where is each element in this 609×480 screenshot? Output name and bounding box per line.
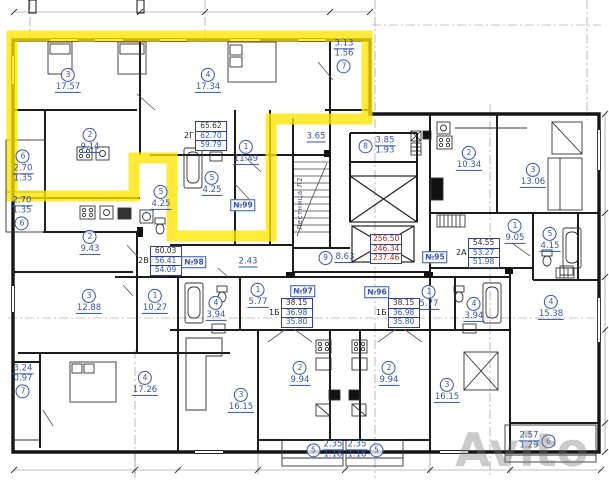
area-living: 35.80 <box>282 318 312 327</box>
room-number: 3 <box>82 289 96 303</box>
room-area: 5.77 <box>419 300 440 310</box>
room-number: 1 <box>508 219 522 233</box>
room-area: 9.94 <box>379 376 400 386</box>
room-area-secondary: 1.35 <box>12 207 33 216</box>
room-area: 17.57 <box>55 83 81 93</box>
unit-tag-95: №95 <box>422 251 447 263</box>
room-number: 2 <box>462 146 476 160</box>
room-label: 15.77 <box>419 284 440 310</box>
apartment-id: 2В <box>138 256 149 265</box>
room-area: 9.14 <box>80 143 101 153</box>
room-area: 8.63 <box>335 253 356 263</box>
room-number: 6 <box>16 149 30 163</box>
room-number: 4 <box>209 296 223 310</box>
room-area: 3.94 <box>464 312 485 322</box>
watermark: Avito <box>455 423 588 477</box>
room-number: 4 <box>544 295 558 309</box>
room-number: 3 <box>440 378 454 392</box>
floor-plan: 317.57417.343.131.56729.14111.4954.2554.… <box>0 0 609 480</box>
room-number: 5 <box>154 185 168 199</box>
outer-walls <box>13 40 599 452</box>
unit-tag-97: №97 <box>290 285 315 297</box>
room-area-secondary: 1.18 <box>323 451 344 460</box>
room-area: 4.15 <box>540 242 561 252</box>
room-label: 317.57 <box>55 67 81 93</box>
room-label: 316.15 <box>228 387 254 413</box>
room-area: 11.49 <box>233 155 259 165</box>
room-label: 83.851.93 <box>359 136 396 155</box>
room-label: 29.43 <box>80 229 101 255</box>
room-label: 111.49 <box>233 139 259 165</box>
apartment-areas: 38.15 36.98 35.80 <box>281 298 313 328</box>
room-label: 3.240.977 <box>13 364 34 399</box>
room-area: 10.27 <box>142 304 168 314</box>
room-area: 13.06 <box>520 178 546 188</box>
room-label: 2.701.356 <box>12 196 33 231</box>
room-number: 1 <box>148 289 162 303</box>
room-label: 54.15 <box>540 226 561 252</box>
room-label: 62.701.35 <box>13 148 34 183</box>
room-area: 9.94 <box>290 376 311 386</box>
room-number: 7 <box>16 385 30 399</box>
room-area: 17.26 <box>132 386 158 396</box>
apartment-table-1b-left: 1Б 38.15 36.98 35.80 <box>269 298 313 328</box>
room-number: 9 <box>319 251 333 265</box>
room-label: 54.25 <box>202 170 223 196</box>
room-label: 110.27 <box>142 288 168 314</box>
room-label: 29.94 <box>379 360 400 386</box>
room-label: 29.14 <box>80 127 101 153</box>
apartment-table-1b-right: 1Б 38.15 36.98 35.80 <box>376 298 420 328</box>
room-area-secondary: 1.18 <box>347 451 368 460</box>
room-label: 54.25 <box>151 184 172 210</box>
unit-tag-96: №96 <box>364 286 389 298</box>
room-number: 1 <box>251 283 265 297</box>
area-living: 59.79 <box>196 141 226 150</box>
room-number: 2 <box>83 128 97 142</box>
total-row: 237.46 <box>371 254 401 263</box>
apartment-areas: 54.55 53.27 51.98 <box>468 238 500 268</box>
apartment-areas: 65.62 62.70 59.79 <box>195 121 227 151</box>
room-area: 4.25 <box>202 186 223 196</box>
room-area: 16.15 <box>228 403 254 413</box>
room-label: 316.15 <box>434 377 460 403</box>
room-label: 2.351.185 <box>347 440 384 459</box>
area-living: 51.98 <box>469 258 499 267</box>
room-area: 10.34 <box>456 161 482 171</box>
floor-totals-table: 256.50 246.34 237.46 <box>370 234 402 264</box>
room-area: 16.15 <box>434 393 460 403</box>
area-living: 54.09 <box>151 266 181 275</box>
dimension-label: 2.43 <box>239 257 258 268</box>
room-number: 5 <box>543 227 557 241</box>
room-number: 1 <box>239 140 253 154</box>
apartment-id: 2Г <box>184 131 194 140</box>
room-number: 2 <box>83 230 97 244</box>
room-number: 5 <box>205 171 219 185</box>
room-number: 4 <box>138 371 152 385</box>
room-label: 415.38 <box>538 294 564 320</box>
staircase-label: Лестница Л2 <box>296 177 304 230</box>
room-label: 3.131.567 <box>334 39 355 74</box>
apartment-id: 1Б <box>376 308 387 317</box>
room-area-secondary: 1.56 <box>334 50 355 59</box>
room-number: 6 <box>15 217 29 231</box>
area-living: 35.80 <box>389 318 419 327</box>
room-area: 12.88 <box>76 304 102 314</box>
room-number: 5 <box>369 443 383 457</box>
room-label: 312.88 <box>76 288 102 314</box>
room-label: 52.351.18 <box>307 440 344 459</box>
apartment-areas: 38.15 36.98 35.80 <box>388 298 420 328</box>
room-area: 15.38 <box>538 310 564 320</box>
unit-tag-99: №99 <box>230 199 255 211</box>
room-number: 7 <box>337 60 351 74</box>
room-number: 8 <box>359 139 373 153</box>
room-label: 417.26 <box>132 370 158 396</box>
inner-walls <box>13 40 599 452</box>
apartment-table-2v: 2В 60.03 56.41 54.09 <box>138 246 182 276</box>
furniture <box>48 42 582 410</box>
wall-stubs <box>29 0 144 13</box>
room-area: 5.77 <box>248 298 269 308</box>
room-number: 3 <box>526 163 540 177</box>
room-label: 98.63 <box>319 250 356 266</box>
room-label: 43.94 <box>206 295 227 321</box>
room-number: 1 <box>422 285 436 299</box>
room-number: 3 <box>234 388 248 402</box>
room-number: 5 <box>307 443 321 457</box>
room-label: 19.05 <box>505 218 526 244</box>
room-label: 43.94 <box>464 296 485 322</box>
apartment-table-2a: 2А 54.55 53.27 51.98 <box>456 238 500 268</box>
room-number: 4 <box>201 68 215 82</box>
room-label: 29.94 <box>290 360 311 386</box>
room-area: 3.94 <box>206 311 227 321</box>
room-number: 2 <box>382 361 396 375</box>
room-label: 417.34 <box>195 67 221 93</box>
room-label: 15.77 <box>248 282 269 308</box>
room-number: 4 <box>467 297 481 311</box>
room-area-secondary: 1.35 <box>13 175 34 184</box>
room-area-secondary: 0.97 <box>13 375 34 384</box>
unit-tag-98: №98 <box>181 256 206 268</box>
apartment-table-2g: 2Г 65.62 62.70 59.79 <box>184 121 227 151</box>
room-label: 313.06 <box>520 162 546 188</box>
room-area: 9.05 <box>505 234 526 244</box>
apartment-id: 2А <box>456 248 467 257</box>
apartment-areas: 60.03 56.41 54.09 <box>150 246 182 276</box>
room-number: 2 <box>293 361 307 375</box>
room-area: 17.34 <box>195 83 221 93</box>
room-area: 9.43 <box>80 245 101 255</box>
apartment-id: 1Б <box>269 308 280 317</box>
dimension-label: 3.65 <box>307 132 326 143</box>
room-area: 4.25 <box>151 200 172 210</box>
room-label: 210.34 <box>456 145 482 171</box>
room-number: 3 <box>61 68 75 82</box>
room-area-secondary: 1.93 <box>375 147 396 156</box>
totals-areas: 256.50 246.34 237.46 <box>370 234 402 264</box>
